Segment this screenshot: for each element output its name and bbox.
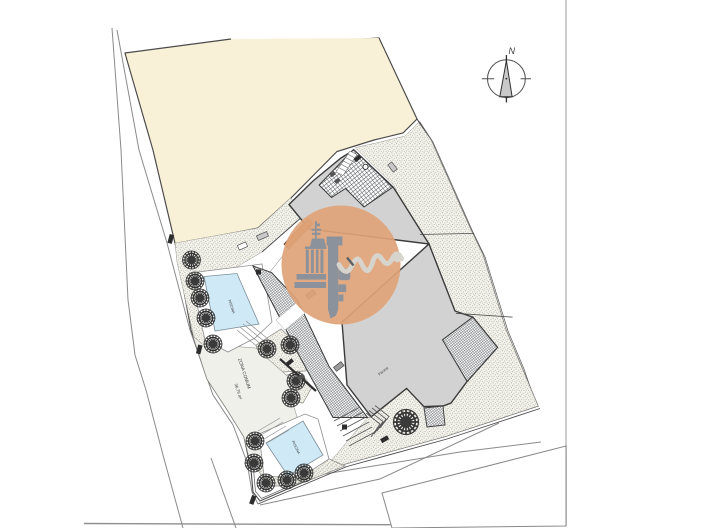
svg-text:N: N: [509, 46, 516, 56]
